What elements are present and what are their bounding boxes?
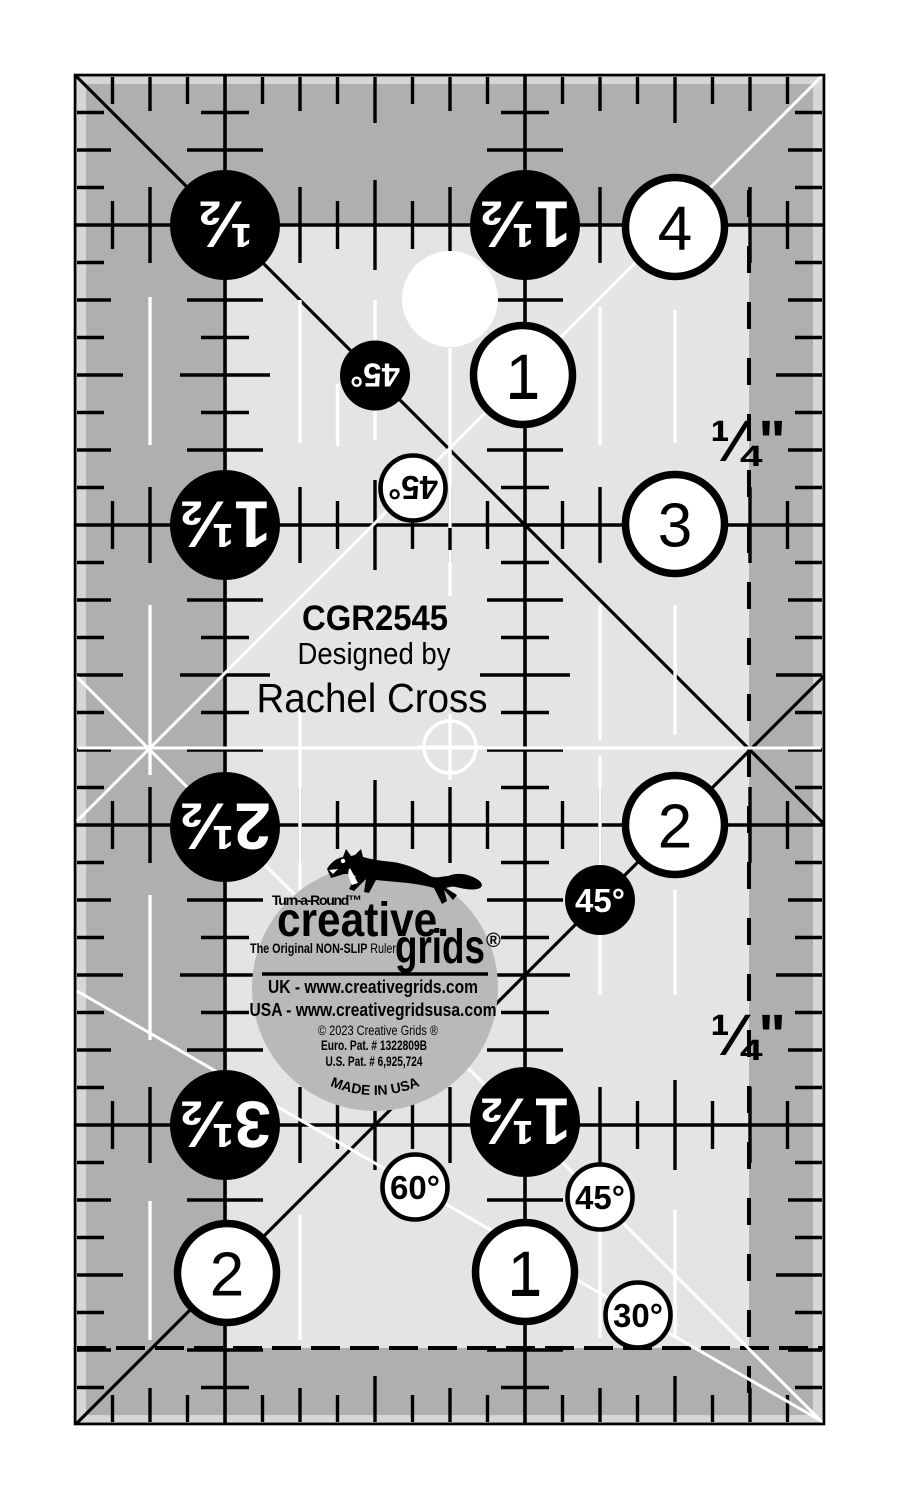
- svg-text:grids: grids: [395, 921, 485, 974]
- svg-text:4: 4: [658, 194, 692, 263]
- svg-text:2½: 2½: [179, 789, 271, 863]
- svg-text:®: ®: [486, 930, 501, 952]
- svg-text:1: 1: [506, 342, 540, 411]
- svg-text:© 2023 Creative Grids ®: © 2023 Creative Grids ®: [318, 1023, 438, 1038]
- svg-text:½: ½: [197, 187, 252, 261]
- svg-text:UK - www.creativegrids.com: UK - www.creativegrids.com: [268, 977, 478, 997]
- svg-text:¼": ¼": [710, 1003, 786, 1068]
- svg-text:1½: 1½: [479, 1084, 571, 1158]
- svg-text:The Original NON-SLIP Ruler: The Original NON-SLIP Ruler: [250, 941, 396, 956]
- svg-text:1½: 1½: [479, 187, 571, 261]
- svg-text:45°: 45°: [388, 469, 438, 506]
- svg-text:1½: 1½: [179, 487, 271, 561]
- svg-text:Designed by: Designed by: [298, 636, 451, 671]
- svg-text:USA - www.creativegridsusa.com: USA - www.creativegridsusa.com: [250, 1000, 497, 1020]
- svg-text:45°: 45°: [350, 357, 400, 394]
- svg-text:3½: 3½: [179, 1087, 271, 1161]
- svg-text:Rachel Cross: Rachel Cross: [257, 675, 488, 721]
- svg-text:2: 2: [210, 1240, 244, 1309]
- svg-text:U.S. Pat. # 6,925,724: U.S. Pat. # 6,925,724: [326, 1054, 423, 1069]
- svg-text:30°: 30°: [613, 1297, 663, 1334]
- svg-text:45°: 45°: [575, 882, 625, 919]
- svg-text:1: 1: [508, 1239, 542, 1308]
- svg-text:60°: 60°: [390, 1169, 440, 1206]
- svg-text:3: 3: [658, 491, 692, 560]
- svg-text:¼": ¼": [710, 409, 786, 474]
- svg-text:CGR2545: CGR2545: [302, 599, 448, 638]
- svg-text:2: 2: [658, 792, 692, 861]
- svg-text:45°: 45°: [575, 1179, 625, 1216]
- svg-text:Euro. Pat. # 1322809B: Euro. Pat. # 1322809B: [321, 1038, 427, 1053]
